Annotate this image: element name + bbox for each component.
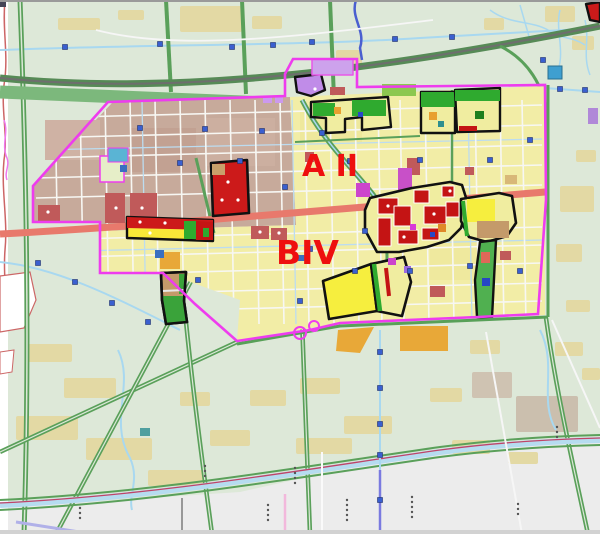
pond	[548, 66, 562, 79]
zoning-map-viewport[interactable]: A II BIV	[0, 0, 600, 534]
district-label-b4: BIV	[276, 233, 339, 272]
zone-west-strip	[127, 217, 213, 241]
zone-northeast-pair	[421, 88, 500, 133]
zone-southwest-strip	[161, 272, 187, 324]
industrial-gray-patch	[516, 396, 578, 432]
district-label-a2: A II	[302, 149, 358, 184]
zone-west-red	[211, 160, 249, 216]
zoning-map-canvas[interactable]: A II BIV	[0, 0, 600, 534]
